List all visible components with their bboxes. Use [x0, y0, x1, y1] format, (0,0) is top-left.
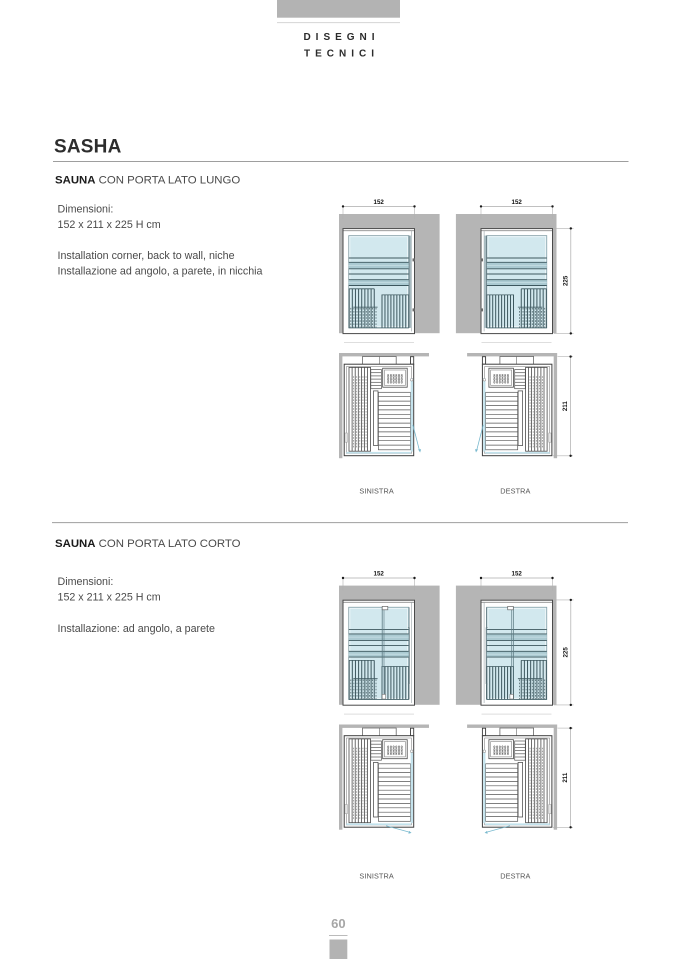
svg-text:225: 225: [563, 275, 570, 286]
svg-text:SINISTRA: SINISTRA: [359, 872, 393, 881]
svg-text:SAUNA CON PORTA LATO LUNGO: SAUNA CON PORTA LATO LUNGO: [55, 175, 240, 187]
svg-text:Installazione: ad angolo, a pa: Installazione: ad angolo, a parete: [58, 623, 216, 635]
svg-text:DISEGNI: DISEGNI: [303, 32, 379, 43]
svg-text:211: 211: [562, 401, 569, 412]
svg-text:SAUNA CON PORTA LATO CORTO: SAUNA CON PORTA LATO CORTO: [55, 538, 241, 550]
svg-text:Installazione ad angolo, a par: Installazione ad angolo, a parete, in ni…: [58, 266, 263, 278]
svg-text:152: 152: [374, 199, 385, 206]
svg-text:Dimensioni:: Dimensioni:: [58, 204, 114, 216]
svg-text:225: 225: [563, 647, 570, 658]
svg-text:Dimensioni:: Dimensioni:: [58, 576, 114, 588]
svg-text:152 x 211 x 225 H cm: 152 x 211 x 225 H cm: [58, 591, 161, 603]
svg-text:SASHA: SASHA: [54, 137, 122, 158]
svg-text:SINISTRA: SINISTRA: [359, 487, 393, 496]
svg-text:TECNICI: TECNICI: [304, 48, 379, 59]
svg-text:Installation corner, back to w: Installation corner, back to wall, niche: [58, 250, 235, 262]
svg-text:152: 152: [374, 570, 385, 577]
svg-text:DESTRA: DESTRA: [500, 872, 530, 881]
svg-text:DESTRA: DESTRA: [500, 487, 530, 496]
svg-text:60: 60: [331, 916, 345, 931]
svg-text:152 x 211 x 225 H cm: 152 x 211 x 225 H cm: [58, 219, 161, 231]
svg-text:211: 211: [562, 772, 569, 783]
svg-text:152: 152: [512, 570, 523, 577]
svg-text:152: 152: [512, 199, 523, 206]
